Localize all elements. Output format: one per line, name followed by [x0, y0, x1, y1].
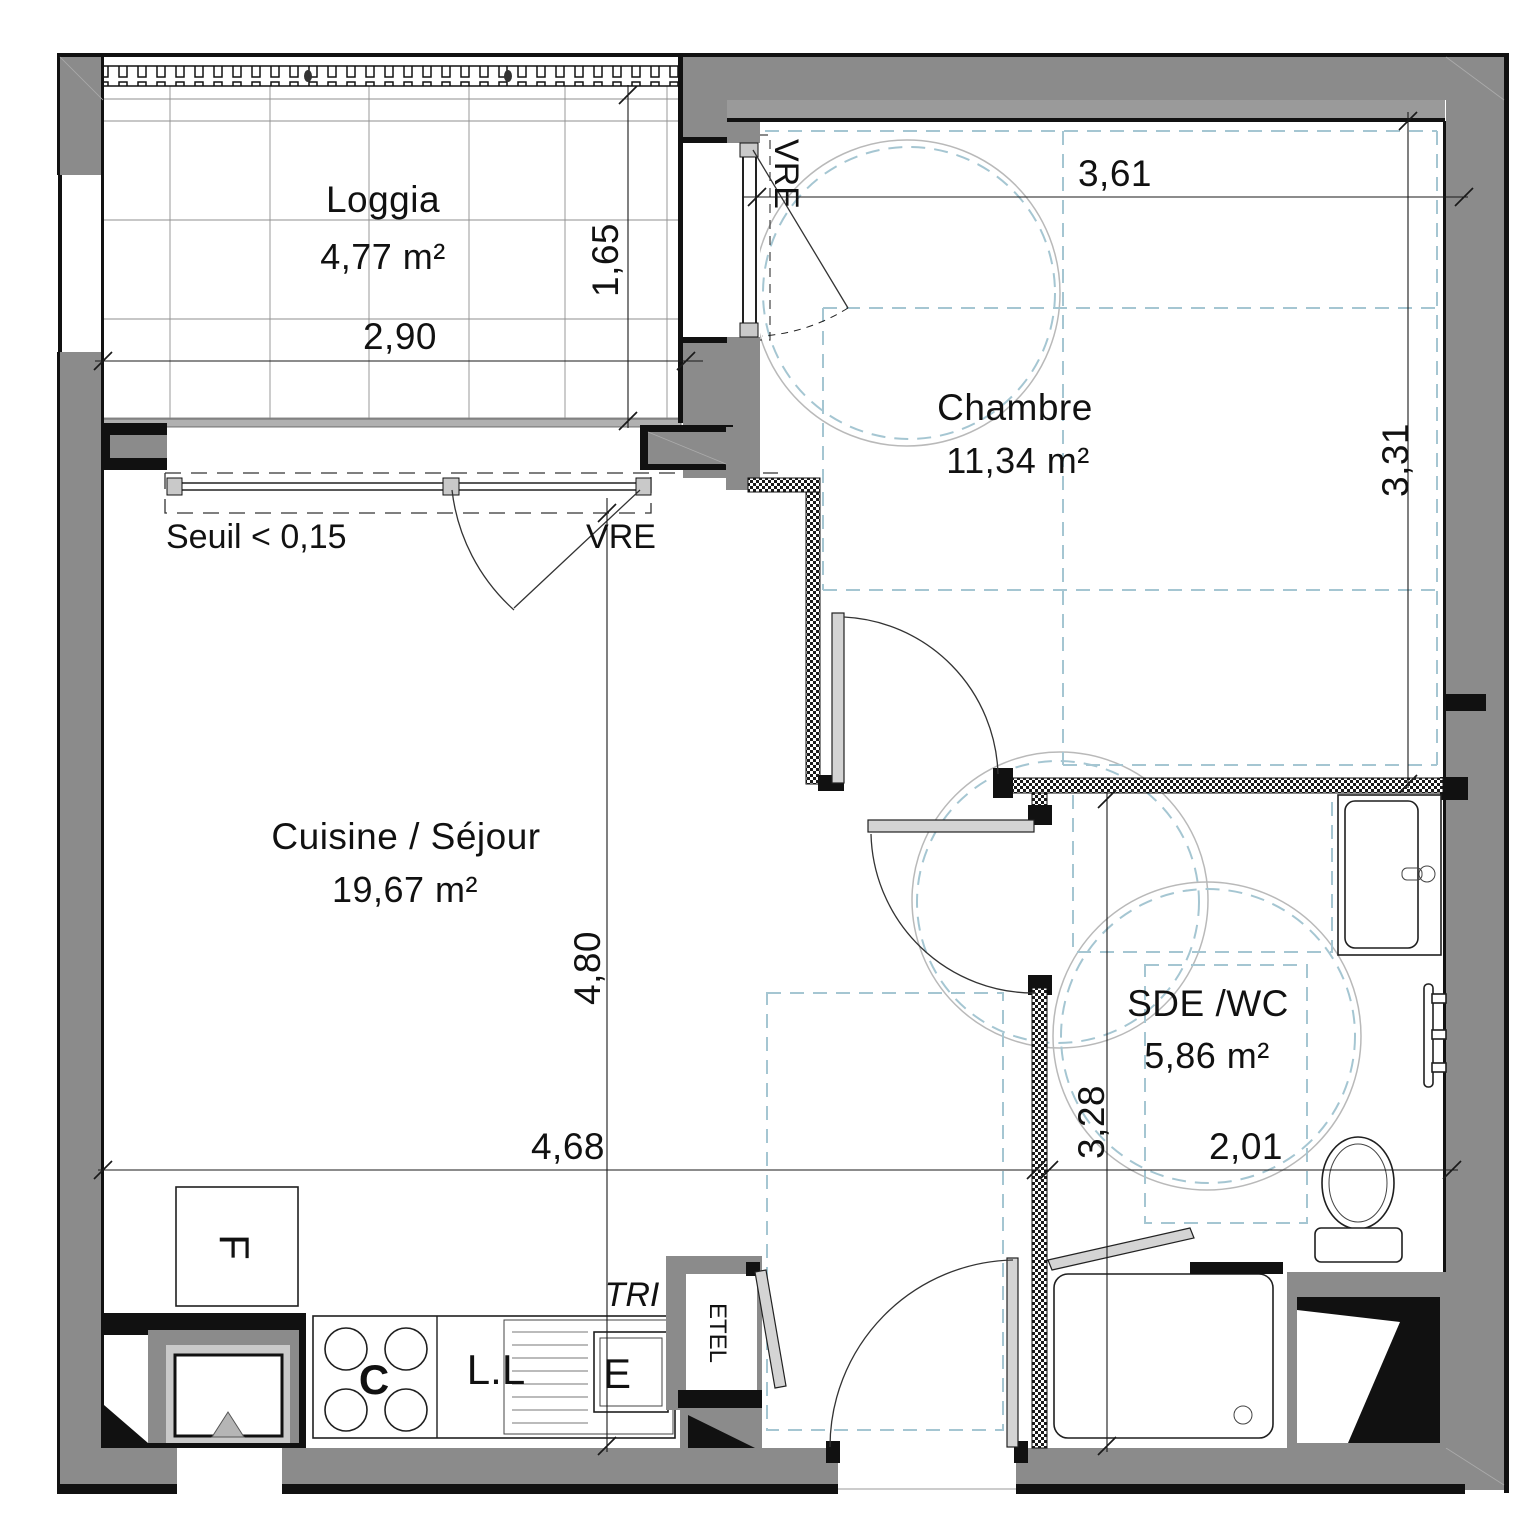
shower-wall-stub: [1190, 1262, 1283, 1274]
mullion: [167, 478, 182, 495]
entrance-door-leaf: [1007, 1258, 1018, 1447]
left-wall-innerface2: [101, 470, 104, 1448]
chambre-window-opening: [683, 143, 760, 337]
bottom-vent-gap: [177, 1448, 282, 1516]
sde-door-leaf: [868, 820, 1034, 832]
label-chambre: Chambre: [937, 387, 1093, 428]
dim-chambre-width: 3,61: [742, 153, 1473, 206]
dim-label-3-28: 3,28: [1071, 1085, 1112, 1159]
label-cuisine-area: 19,67 m²: [332, 869, 478, 910]
duct-shaft: [101, 1313, 306, 1448]
label-chambre-area: 11,34 m²: [946, 440, 1089, 481]
label-vre-chambre: VRE: [767, 139, 805, 209]
entrance-door-swing: [830, 1260, 1013, 1447]
burner-icon: [385, 1389, 427, 1431]
entrance-gap: [838, 1448, 1016, 1516]
service-shaft: [1287, 1272, 1455, 1448]
partition-h1: [748, 478, 820, 492]
wall-right-nib: [1440, 777, 1468, 800]
wall-right-edge: [1504, 53, 1509, 1493]
label-seuil: Seuil < 0,15: [166, 518, 347, 556]
toilet-icon: [1315, 1137, 1402, 1262]
loggia-sill: [103, 419, 681, 427]
window-cap: [740, 323, 758, 337]
label-washer: L.L: [467, 1346, 525, 1393]
chambre-door-leaf: [832, 613, 844, 783]
burner-icon: [385, 1328, 427, 1370]
shower-tray: [1054, 1274, 1273, 1438]
label-cuisine: Cuisine / Séjour: [271, 816, 540, 857]
dim-label-4-80: 4,80: [567, 931, 608, 1005]
partition-chambre-south: [995, 778, 1443, 793]
sde-door-swing: [871, 834, 1036, 993]
railing-post-icon: [304, 70, 312, 82]
loggia-corner-left-fill: [110, 435, 167, 458]
label-sink: E: [603, 1350, 631, 1397]
left-window-gap: [56, 175, 101, 352]
label-cooktop: C: [359, 1356, 389, 1403]
floor-plan-svg: 2,90 1,65 3,61 3,31 4,80 4,68: [0, 0, 1534, 1516]
shower: [1048, 1228, 1283, 1438]
window-sill-edge: [683, 337, 727, 343]
door-jamb: [993, 768, 1013, 798]
doors: [753, 150, 1036, 1463]
chambre-door-swing: [844, 617, 998, 774]
label-tri: TRI: [605, 1276, 660, 1314]
label-loggia: Loggia: [326, 179, 440, 220]
label-etel: ETEL: [704, 1303, 731, 1363]
label-vre-loggia: VRE: [586, 518, 656, 556]
dim-chambre-depth: 3,31: [1375, 112, 1417, 793]
wall-top-lining: [727, 100, 1445, 121]
left-wall-innerface: [101, 57, 104, 423]
entrance-clearance-rect: [767, 993, 1003, 1430]
wall-right-notch: [1443, 694, 1486, 711]
label-fridge: F: [211, 1234, 258, 1260]
seuil-dashes: [165, 473, 778, 513]
dim-cuisine-width: 4,68: [94, 1126, 1045, 1179]
entrance-jamb: [826, 1441, 840, 1463]
label-sde-area: 5,86 m²: [1144, 1035, 1270, 1076]
partition-sde-west: [1032, 988, 1047, 1448]
window-head: [683, 137, 727, 143]
kitchen-fixtures: [101, 1187, 786, 1448]
partition-chambre-west: [806, 492, 820, 784]
bay-door-swing: [452, 490, 514, 610]
floor-plan-page: 2,90 1,65 3,61 3,31 4,80 4,68: [0, 0, 1534, 1516]
mullion: [443, 478, 459, 495]
wall-top-edge: [57, 53, 1509, 57]
label-loggia-area: 4,77 m²: [320, 236, 446, 277]
left-window-line: [58, 175, 62, 352]
loggia-railing: [103, 66, 681, 86]
chambre-window-swing: [762, 308, 848, 336]
dim-label-1-65: 1,65: [585, 223, 626, 297]
shower-screen: [1048, 1228, 1194, 1270]
dim-label-3-31: 3,31: [1375, 423, 1416, 497]
label-sde: SDE /WC: [1127, 983, 1289, 1024]
dim-label-2-01: 2,01: [1209, 1126, 1283, 1167]
dim-label-3-61: 3,61: [1078, 153, 1152, 194]
towel-rail-icon: [1424, 984, 1446, 1087]
dim-label-2-90: 2,90: [363, 316, 437, 357]
vanity-basin: [1345, 801, 1418, 948]
railing-post-icon: [504, 70, 512, 82]
wall-top: [683, 57, 1509, 100]
chambre-clearance-dashes: [765, 131, 1437, 765]
dim-label-4-68: 4,68: [531, 1126, 605, 1167]
wall-top-innerface: [727, 118, 1445, 122]
